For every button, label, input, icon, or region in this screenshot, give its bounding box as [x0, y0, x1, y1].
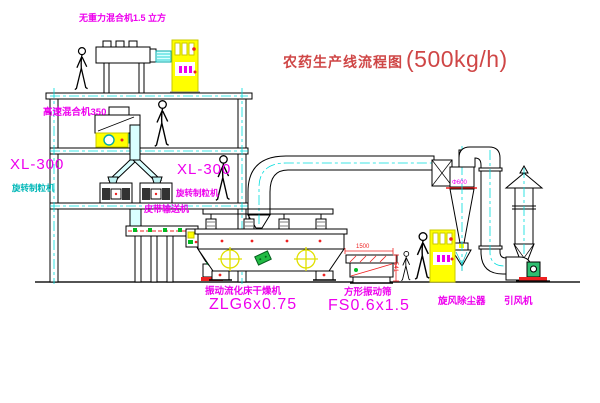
- diagram-title-capacity: (500kg/h): [406, 46, 508, 73]
- gravity-mixer-machine: [96, 41, 171, 93]
- fan-label: 引风机: [504, 297, 533, 307]
- screen-height-dimension: 541: [392, 262, 398, 272]
- induced-draft-fan-machine: [506, 257, 550, 281]
- person-figure: [415, 233, 429, 280]
- granulator-right-label: 旋转制粒机: [176, 189, 219, 198]
- screen-width-dimension: 1500: [356, 244, 369, 250]
- granulator-left-machine: [100, 183, 132, 203]
- cyclone-label: 旋风除尘器: [438, 297, 486, 307]
- mixer-motor-icon: [156, 51, 171, 62]
- person-figure: [75, 48, 88, 90]
- fluid-bed-dryer-model: ZLG6x0.75: [209, 297, 297, 313]
- belt-conveyor-label: 皮带输送机: [144, 205, 189, 214]
- control-cabinet-right-icon: [430, 230, 455, 282]
- granulator-right-machine: [140, 183, 172, 203]
- feed-duct: [130, 125, 140, 160]
- diagram-title: 农药生产线流程图 (500kg/h): [283, 46, 508, 73]
- granulator-right-model: XL-300: [177, 162, 231, 177]
- person-figure: [155, 101, 169, 147]
- vibrating-screen-machine: [345, 248, 399, 283]
- granulator-discharge-duct: [130, 209, 141, 227]
- flow-diagram-canvas: 农药生产线流程图 (500kg/h) 无重力混合机1.5 立方 高速混合机350…: [0, 0, 600, 403]
- high-speed-mixer-label: 高速混合机350: [43, 108, 106, 118]
- diagram-title-text: 农药生产线流程图: [283, 52, 403, 72]
- vibrating-screen-model: FS0.6x1.5: [328, 298, 410, 314]
- person-figure: [401, 251, 410, 280]
- cyclone-diameter-label: Φ600: [452, 180, 467, 186]
- granulator-left-label: 旋转制粒机: [12, 184, 55, 193]
- y-splitter-duct: [108, 160, 162, 183]
- gravity-mixer-label: 无重力混合机1.5 立方: [79, 14, 166, 23]
- control-cabinet-top-icon: [170, 40, 200, 92]
- dryer-inlet-duct: [248, 156, 438, 228]
- granulator-left-model: XL-300: [10, 157, 64, 172]
